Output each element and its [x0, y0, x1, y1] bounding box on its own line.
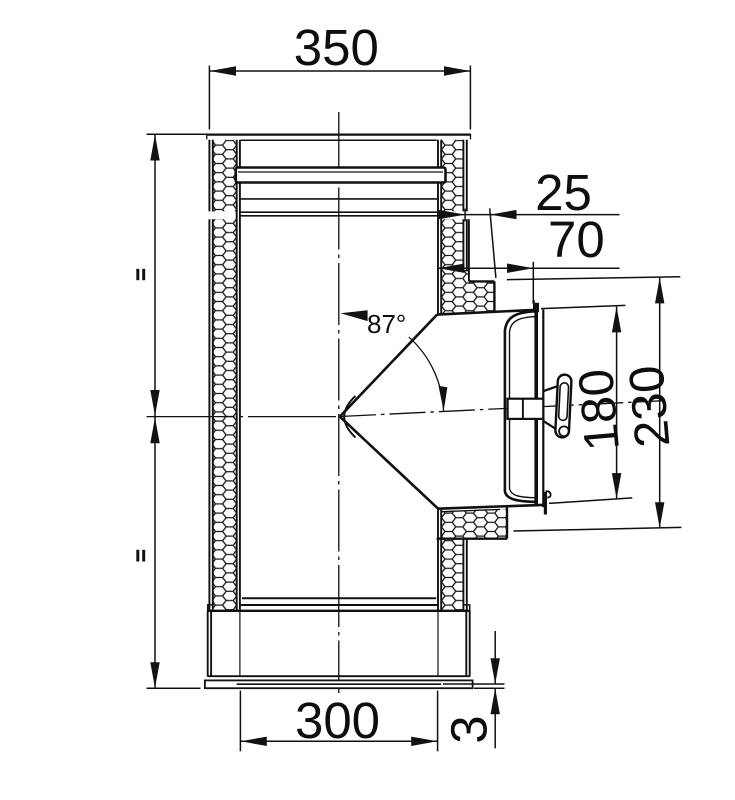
svg-text:300: 300: [295, 692, 380, 749]
svg-text:350: 350: [294, 19, 379, 76]
svg-text:70: 70: [548, 211, 605, 268]
svg-text:3: 3: [440, 715, 497, 743]
svg-text:87°: 87°: [367, 309, 406, 339]
svg-text:230: 230: [620, 363, 681, 449]
